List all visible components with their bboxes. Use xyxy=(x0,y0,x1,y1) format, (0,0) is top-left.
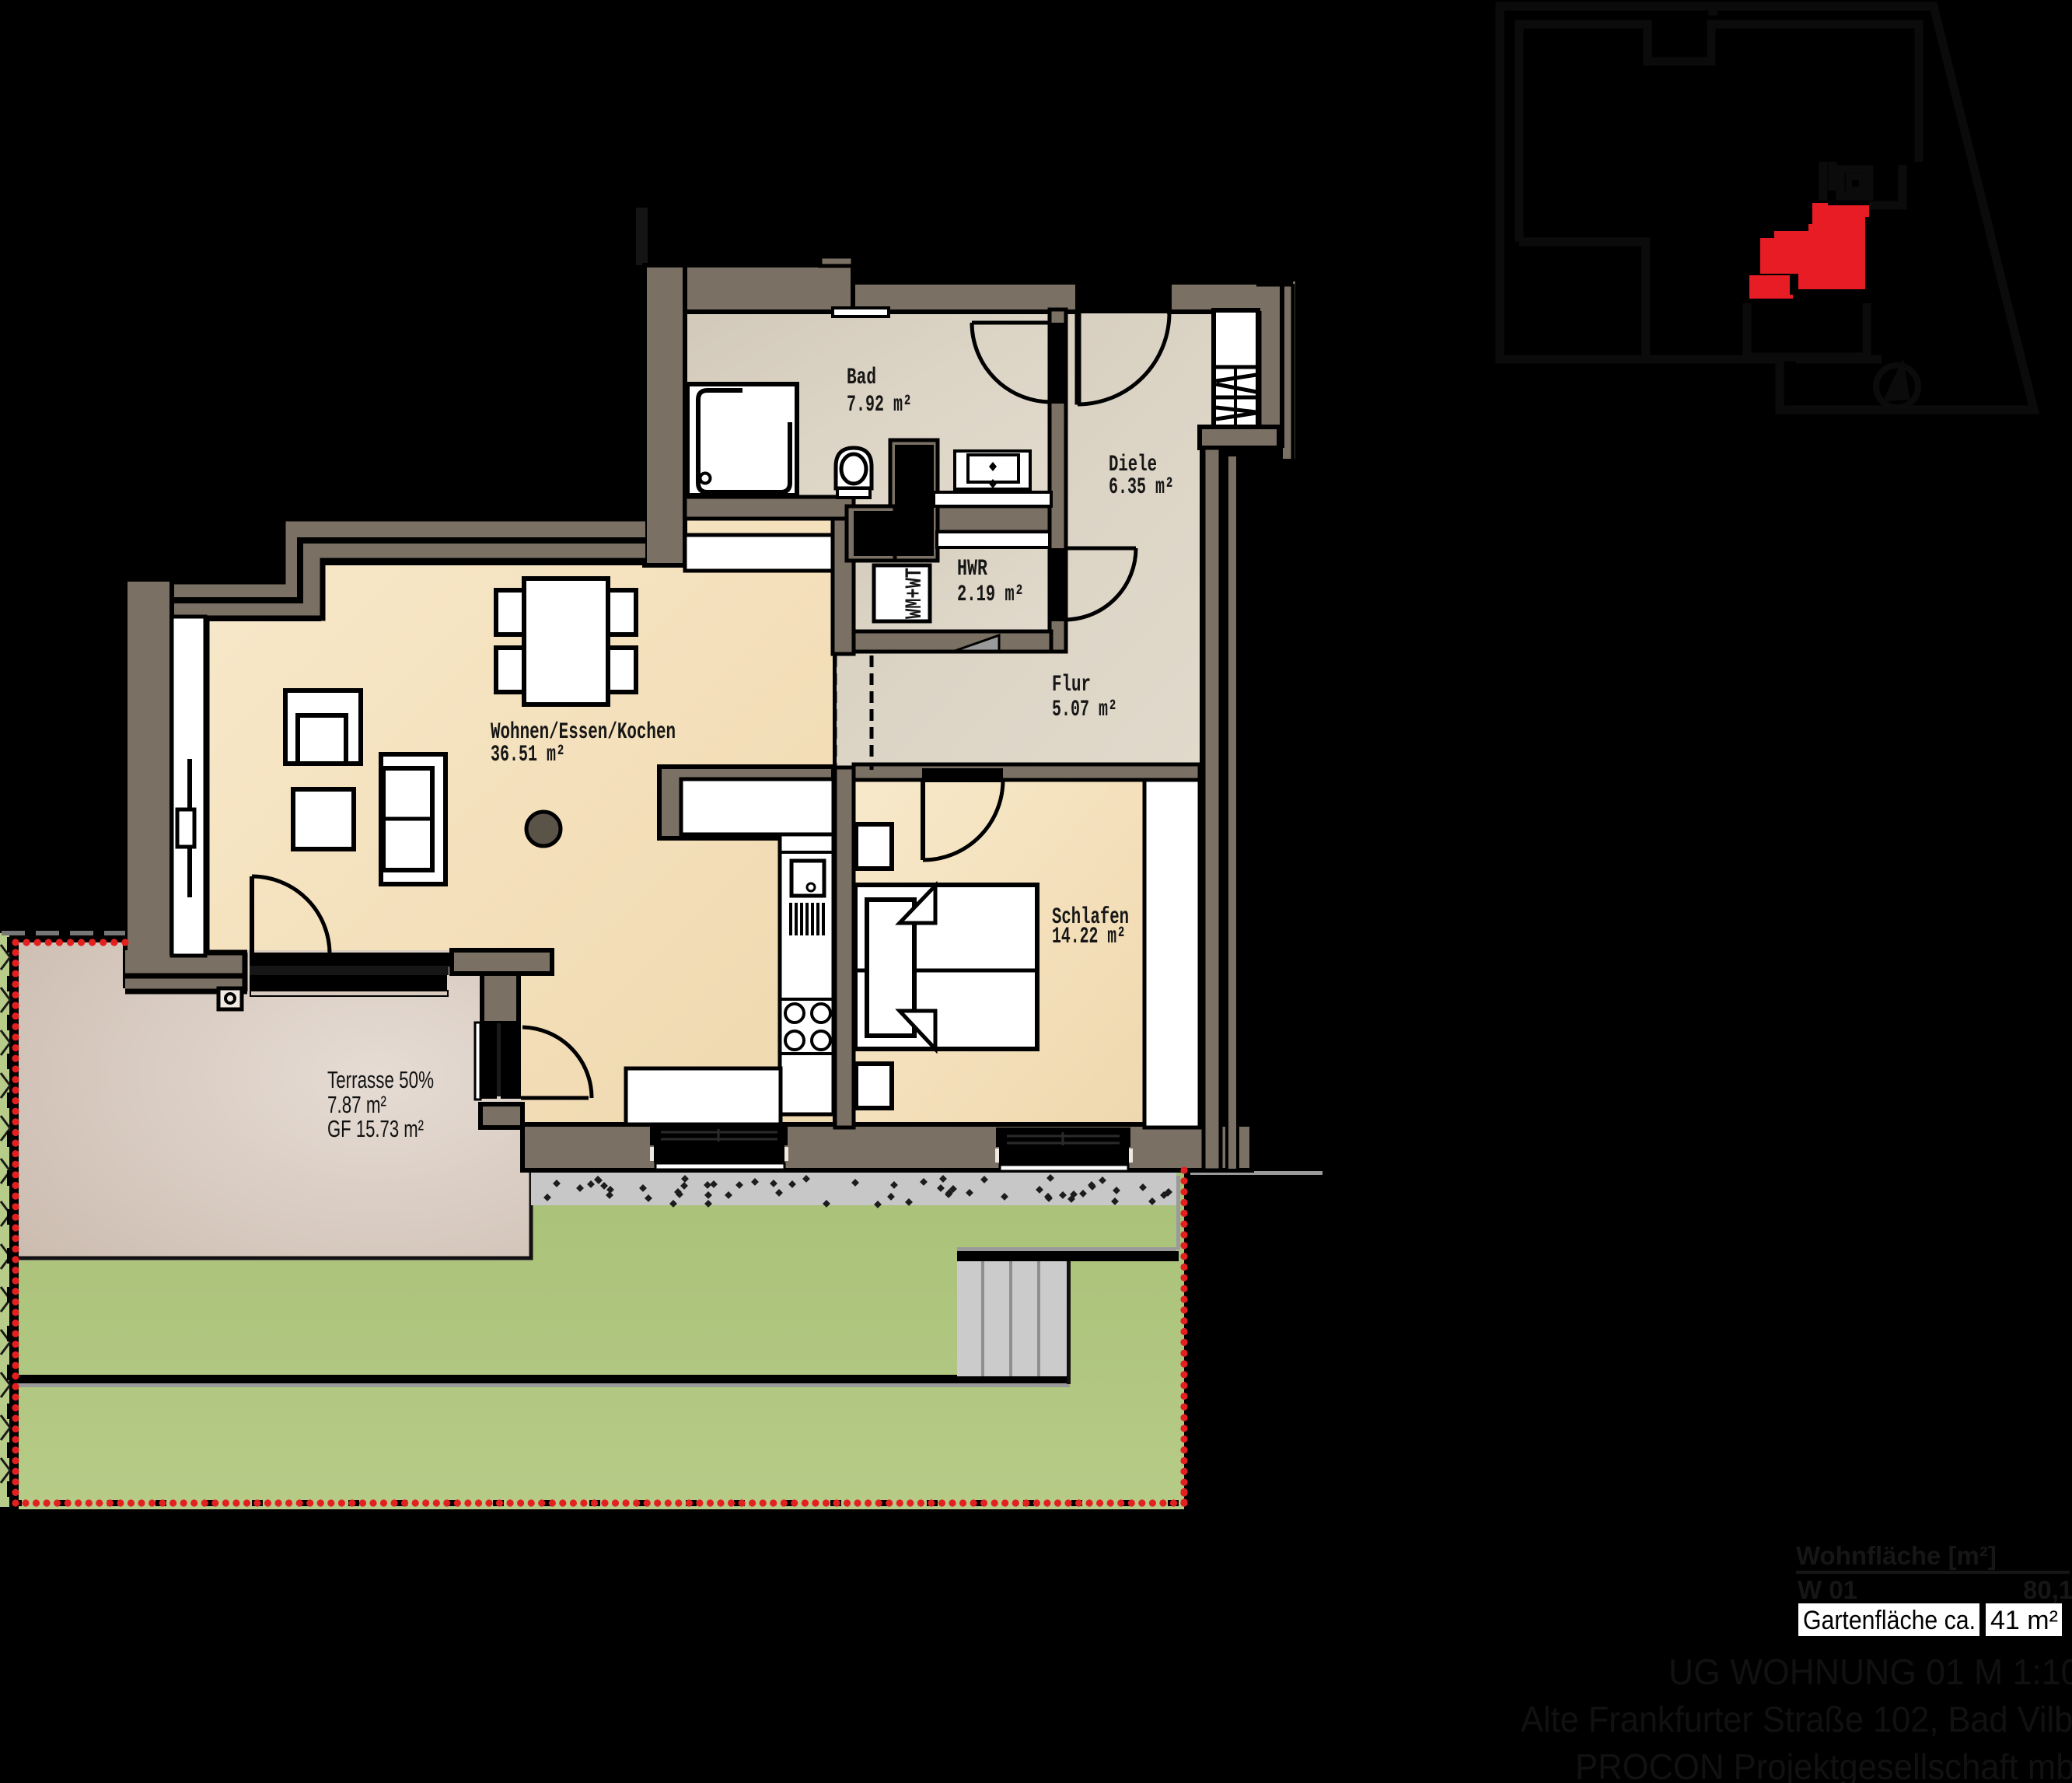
svg-text:7.92 m²: 7.92 m² xyxy=(847,392,912,418)
svg-text:14.22 m²: 14.22 m² xyxy=(1052,924,1126,950)
svg-text:Alte Frankfurter Straße 102, B: Alte Frankfurter Straße 102, Bad Vilbel xyxy=(1521,1699,2072,1739)
svg-text:GF 15.73 m²: GF 15.73 m² xyxy=(327,1115,424,1142)
svg-text:W 01: W 01 xyxy=(1798,1575,1857,1604)
svg-text:PROCON Projektgesellschaft mbH: PROCON Projektgesellschaft mbH xyxy=(1575,1746,2072,1783)
svg-text:Bad: Bad xyxy=(847,365,876,391)
svg-text:41 m²: 41 m² xyxy=(1990,1606,2058,1635)
svg-text:36.51 m²: 36.51 m² xyxy=(491,742,565,768)
svg-text:7.87 m²: 7.87 m² xyxy=(327,1091,386,1118)
svg-text:HWR: HWR xyxy=(957,556,987,582)
svg-text:Terrasse 50%: Terrasse 50% xyxy=(327,1066,434,1093)
svg-text:80,128: 80,128 xyxy=(2023,1575,2072,1604)
svg-text:Wohnfläche [m²]: Wohnfläche [m²] xyxy=(1796,1541,1997,1570)
svg-text:Flur: Flur xyxy=(1052,672,1091,698)
svg-text:Gartenfläche ca.: Gartenfläche ca. xyxy=(1803,1606,1976,1635)
svg-text:6.35 m²: 6.35 m² xyxy=(1109,474,1174,501)
svg-text:5.07 m²: 5.07 m² xyxy=(1052,697,1117,723)
svg-text:WM+WT: WM+WT xyxy=(902,568,928,619)
svg-text:2.19 m²: 2.19 m² xyxy=(957,582,1024,608)
svg-text:UG WOHNUNG 01 M 1:100: UG WOHNUNG 01 M 1:100 xyxy=(1668,1652,2072,1692)
